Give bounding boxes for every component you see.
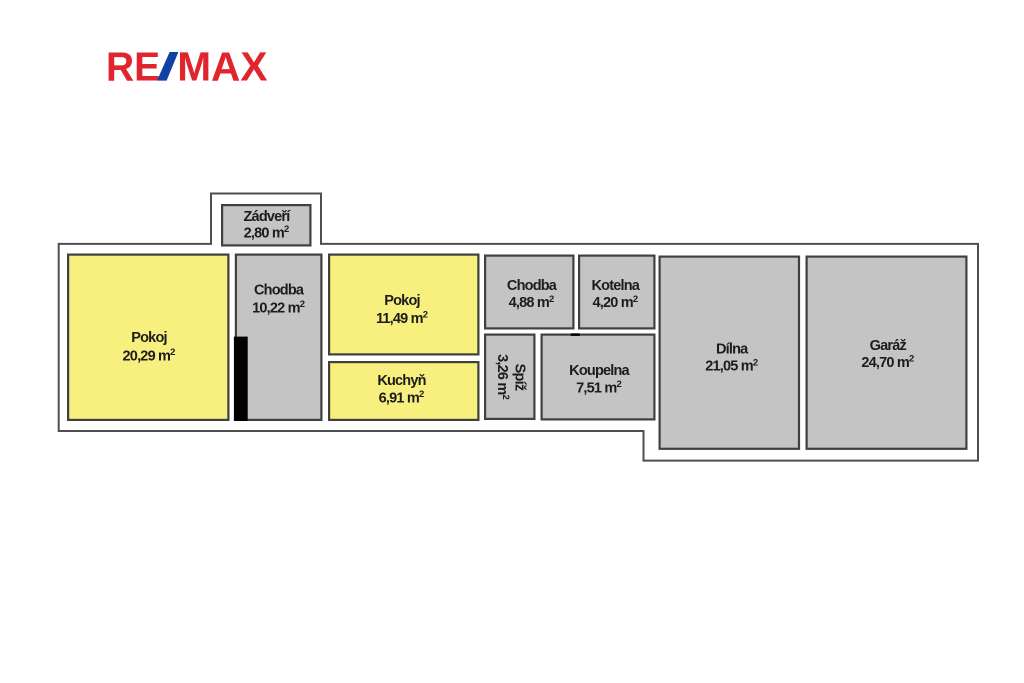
svg-text:6,91 m2: 6,91 m2 [379,389,425,406]
svg-text:4,20 m2: 4,20 m2 [592,294,638,311]
svg-text:4,88 m2: 4,88 m2 [509,294,555,311]
svg-text:Koupelna: Koupelna [569,363,630,379]
svg-text:Spíž: Spíž [511,364,527,391]
svg-text:21,05 m2: 21,05 m2 [705,357,758,374]
svg-text:7,51 m2: 7,51 m2 [576,379,622,396]
svg-text:RE: RE [106,45,160,90]
svg-text:10,22 m2: 10,22 m2 [252,299,305,316]
svg-text:Kotelna: Kotelna [592,278,641,294]
svg-text:Garáž: Garáž [870,338,907,354]
svg-text:24,70 m2: 24,70 m2 [861,354,914,371]
svg-text:Chodba: Chodba [507,278,558,294]
svg-text:11,49 m2: 11,49 m2 [376,310,428,327]
svg-text:Kuchyň: Kuchyň [377,373,425,389]
svg-text:20,29 m2: 20,29 m2 [123,347,176,364]
svg-text:3,26 m2: 3,26 m2 [494,354,511,400]
svg-text:Pokoj: Pokoj [131,330,167,346]
svg-text:2,80 m2: 2,80 m2 [244,224,290,241]
svg-text:MAX: MAX [177,43,267,89]
svg-text:Dílna: Dílna [716,342,749,358]
svg-text:Chodba: Chodba [254,282,305,298]
svg-text:Zádveří: Zádveří [244,209,292,225]
svg-text:Pokoj: Pokoj [384,293,420,309]
